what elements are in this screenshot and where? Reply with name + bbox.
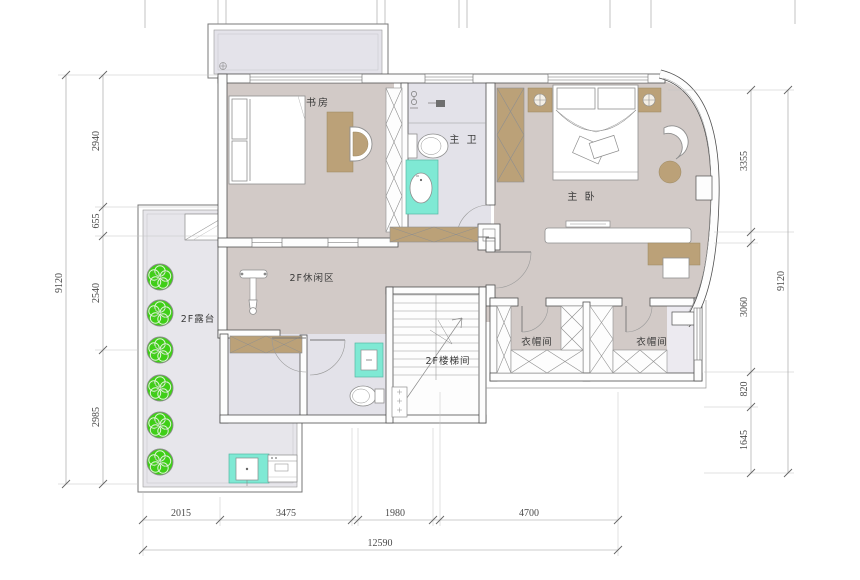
terrace-washer xyxy=(268,455,297,482)
small-bath-shower xyxy=(355,343,383,377)
master-bedroom-label: 主 卧 xyxy=(567,190,596,203)
terrace-sink-counter xyxy=(229,454,269,486)
bedroom-top-window xyxy=(548,74,648,83)
dim-right-total: 9120 xyxy=(776,271,787,291)
dim-bottom-seg-3: 4700 xyxy=(519,508,539,519)
study-desk xyxy=(327,112,353,172)
terrace-label: 2F露台 xyxy=(181,313,216,325)
dim-left-seg-0: 2940 xyxy=(91,131,102,151)
bedroom-bed xyxy=(553,85,638,180)
nightstand-right xyxy=(637,88,661,112)
study-top-window xyxy=(250,74,362,83)
toilet-icon xyxy=(408,134,448,158)
closet-right-window xyxy=(694,308,702,360)
dim-left-seg-2: 2540 xyxy=(91,283,102,303)
dim-left-seg-3: 2985 xyxy=(91,407,102,427)
dim-bottom-seg-0: 2015 xyxy=(171,508,191,519)
leisure-cabinet xyxy=(230,336,302,353)
nightstand-left xyxy=(528,88,552,112)
dim-right-seg-0: 3355 xyxy=(739,151,750,171)
dim-left-total: 9120 xyxy=(54,273,65,293)
balcony-drain-icon xyxy=(220,63,227,70)
vanity-sink xyxy=(406,160,438,214)
dim-right-seg-2: 820 xyxy=(739,382,750,397)
leisure-label: 2F休闲区 xyxy=(289,272,334,284)
dim-left-seg-1: 655 xyxy=(91,214,102,229)
floor-plan-drawing: 2F露台 xyxy=(0,0,860,580)
dim-bottom-seg-1: 3475 xyxy=(276,508,296,519)
bath-accessory-icon xyxy=(436,100,445,107)
study-label: 书房 xyxy=(306,96,330,109)
stairwell-label: 2F楼梯间 xyxy=(425,355,470,367)
closet-left-label: 衣帽间 xyxy=(521,336,553,348)
dim-right-seg-3: 1645 xyxy=(739,430,750,450)
small-bath-toilet xyxy=(350,386,384,406)
bath-top-window xyxy=(425,74,473,83)
dim-right-seg-1: 3060 xyxy=(739,297,750,317)
study-bed xyxy=(229,96,305,184)
dim-bottom-total: 12590 xyxy=(368,538,393,549)
closet-right-label: 衣帽间 xyxy=(636,336,668,348)
bedroom-ottoman xyxy=(659,161,681,183)
floor-plan-canvas: 2F露台 xyxy=(0,0,860,580)
bedroom-wardrobe xyxy=(497,88,524,182)
balcony-top xyxy=(208,24,388,78)
dim-bottom-seg-2: 1980 xyxy=(385,508,405,519)
study-wardrobe-strip xyxy=(386,88,402,232)
stair-radiator xyxy=(392,387,407,417)
cabinet-below-bath xyxy=(390,227,478,242)
master-bath-label: 主 卫 xyxy=(449,134,478,146)
